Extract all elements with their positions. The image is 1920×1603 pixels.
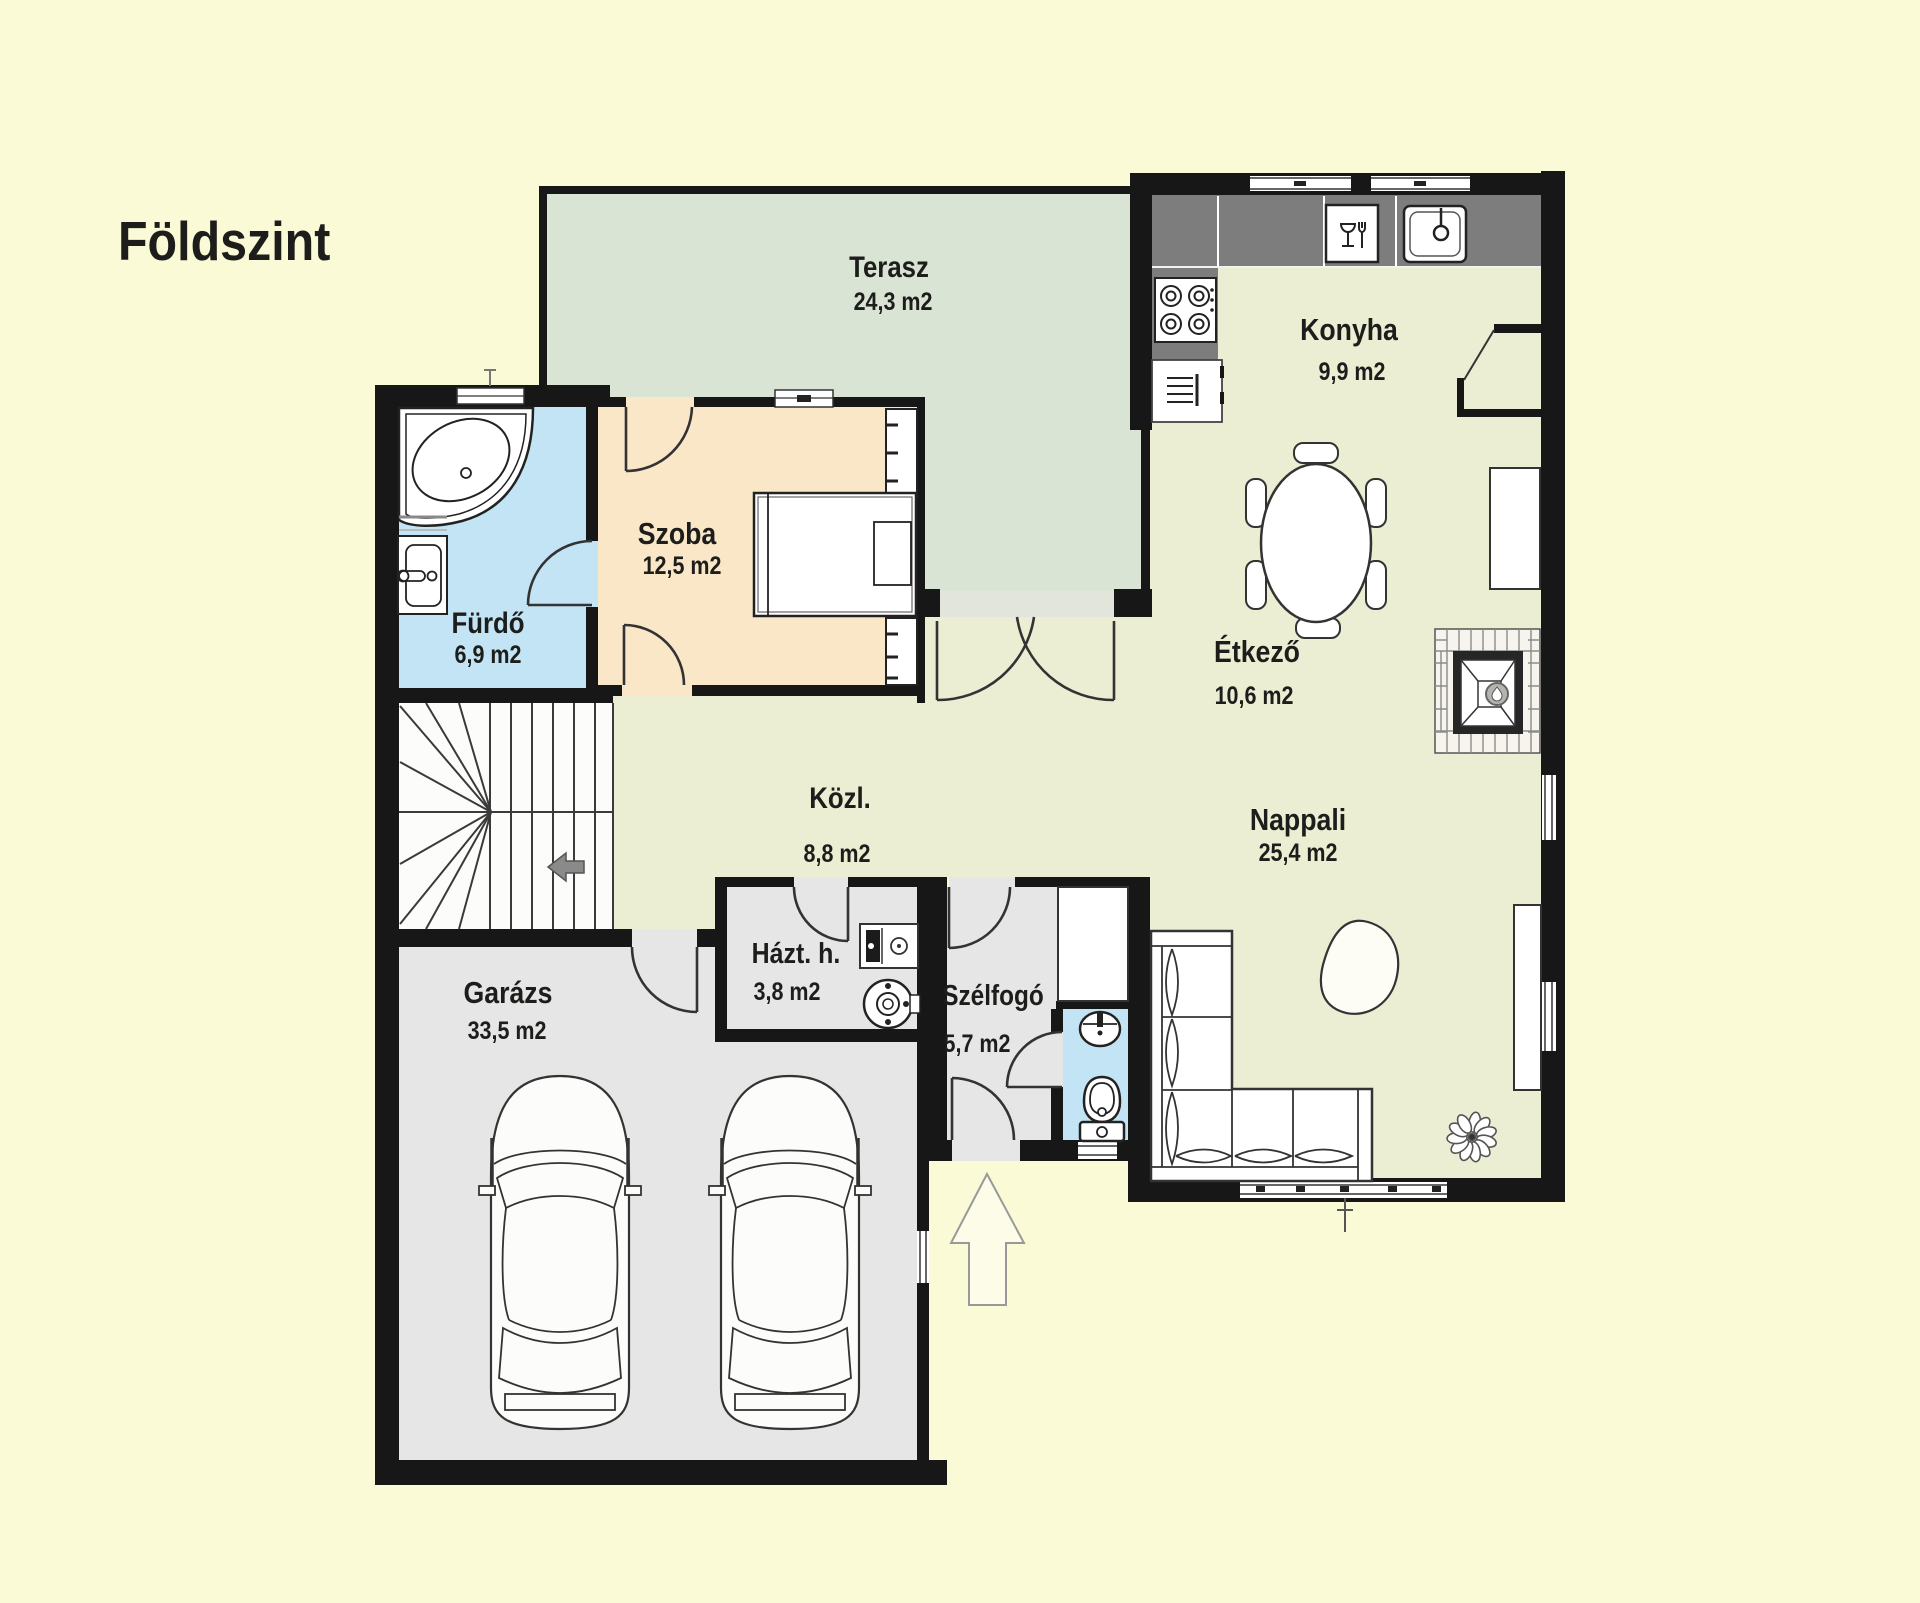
- svg-text:10,6 m2: 10,6 m2: [1215, 681, 1294, 709]
- svg-text:Terasz: Terasz: [849, 250, 929, 283]
- svg-text:Étkező: Étkező: [1214, 633, 1300, 669]
- svg-text:Szoba: Szoba: [638, 517, 717, 551]
- svg-text:Szélfogó: Szélfogó: [942, 979, 1043, 1011]
- svg-text:9,9 m2: 9,9 m2: [1319, 357, 1386, 385]
- svg-text:24,3 m2: 24,3 m2: [854, 287, 933, 315]
- svg-text:Nappali: Nappali: [1250, 803, 1346, 837]
- svg-text:Fürdő: Fürdő: [451, 606, 524, 639]
- svg-text:Földszint: Földszint: [118, 210, 330, 272]
- svg-text:6,9 m2: 6,9 m2: [455, 640, 522, 668]
- svg-text:8,8 m2: 8,8 m2: [804, 839, 871, 867]
- svg-text:Házt. h.: Házt. h.: [752, 937, 841, 969]
- svg-text:12,5 m2: 12,5 m2: [643, 551, 722, 579]
- svg-text:25,4 m2: 25,4 m2: [1259, 838, 1338, 866]
- svg-text:33,5 m2: 33,5 m2: [468, 1016, 547, 1044]
- svg-text:Garázs: Garázs: [464, 976, 553, 1010]
- svg-text:3,8 m2: 3,8 m2: [754, 977, 821, 1005]
- svg-text:Konyha: Konyha: [1300, 313, 1399, 347]
- svg-text:Közl.: Közl.: [809, 781, 871, 814]
- svg-text:5,7 m2: 5,7 m2: [944, 1029, 1011, 1057]
